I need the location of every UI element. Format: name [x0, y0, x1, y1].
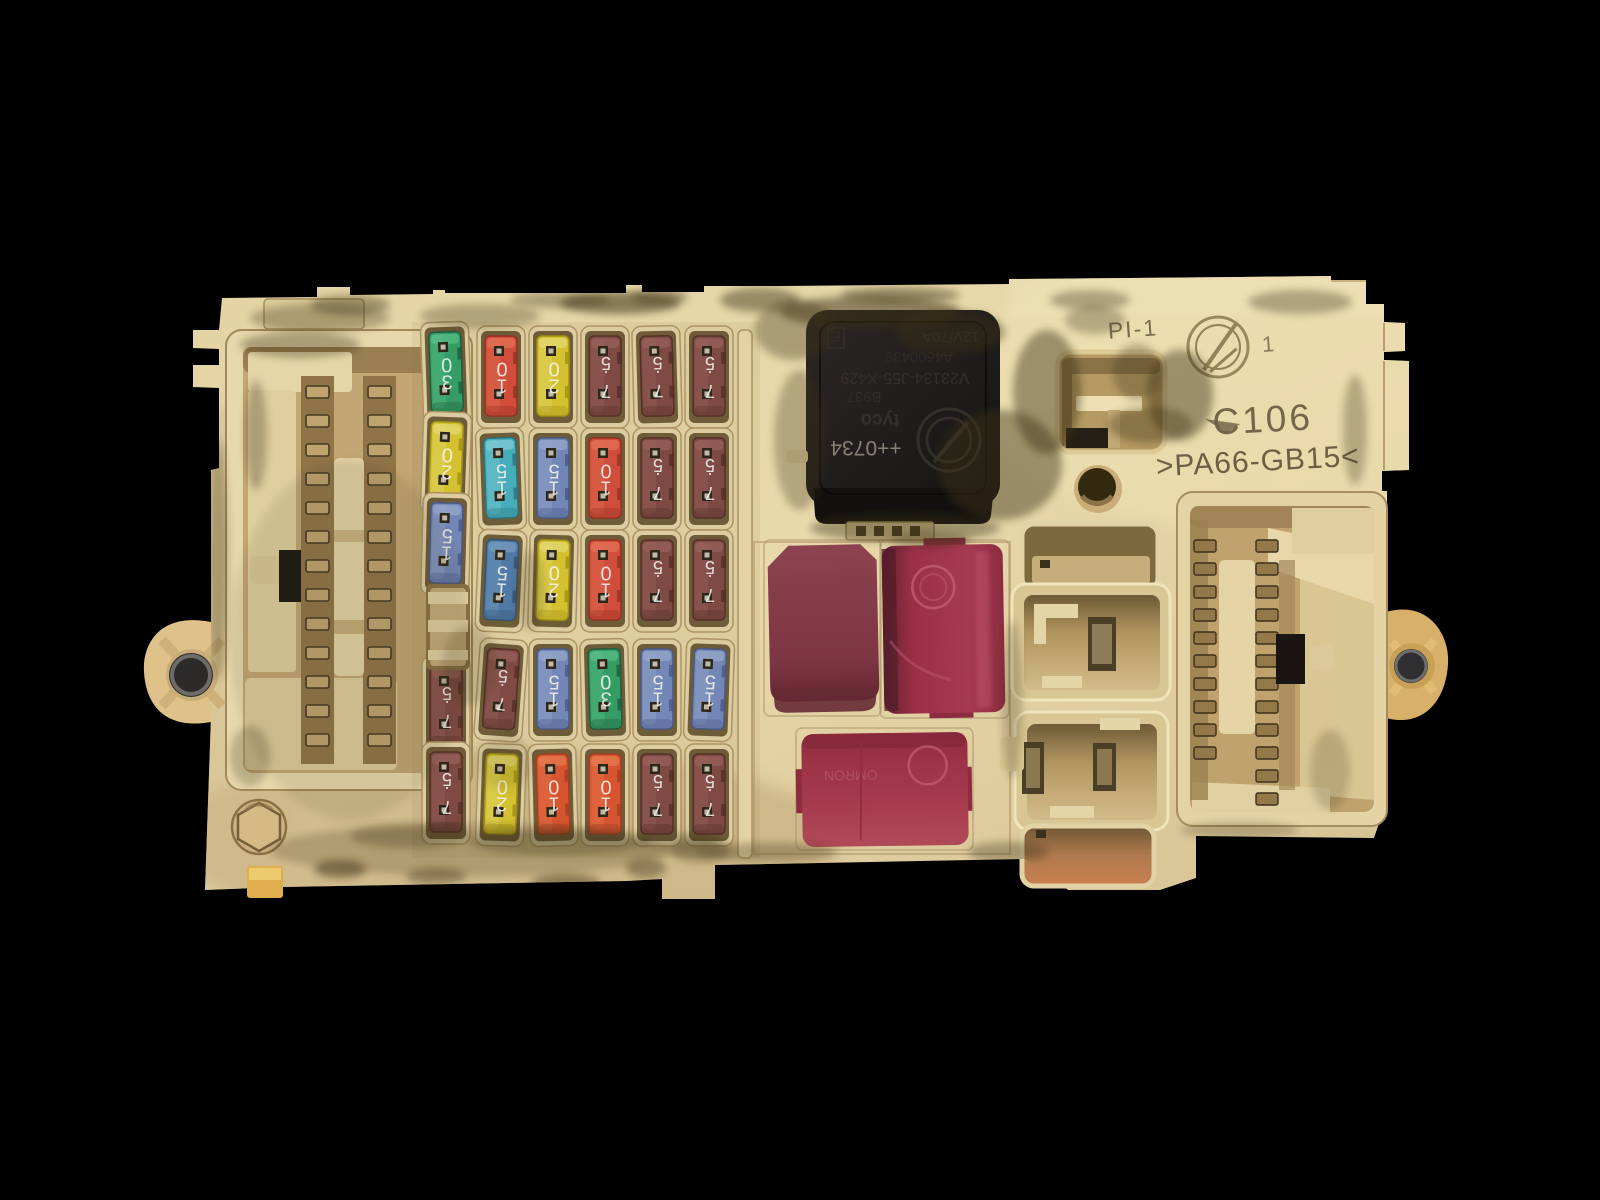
svg-text:C106: C106 [1211, 396, 1313, 442]
svg-text:tyco: tyco [860, 409, 899, 430]
svg-text:V23134-J55-X429: V23134-J55-X429 [840, 369, 969, 386]
svg-text:++0734: ++0734 [830, 436, 902, 459]
svg-text:B937: B937 [846, 388, 881, 405]
svg-text:OMRON: OMRON [824, 767, 878, 784]
svg-text:1: 1 [1261, 331, 1275, 357]
